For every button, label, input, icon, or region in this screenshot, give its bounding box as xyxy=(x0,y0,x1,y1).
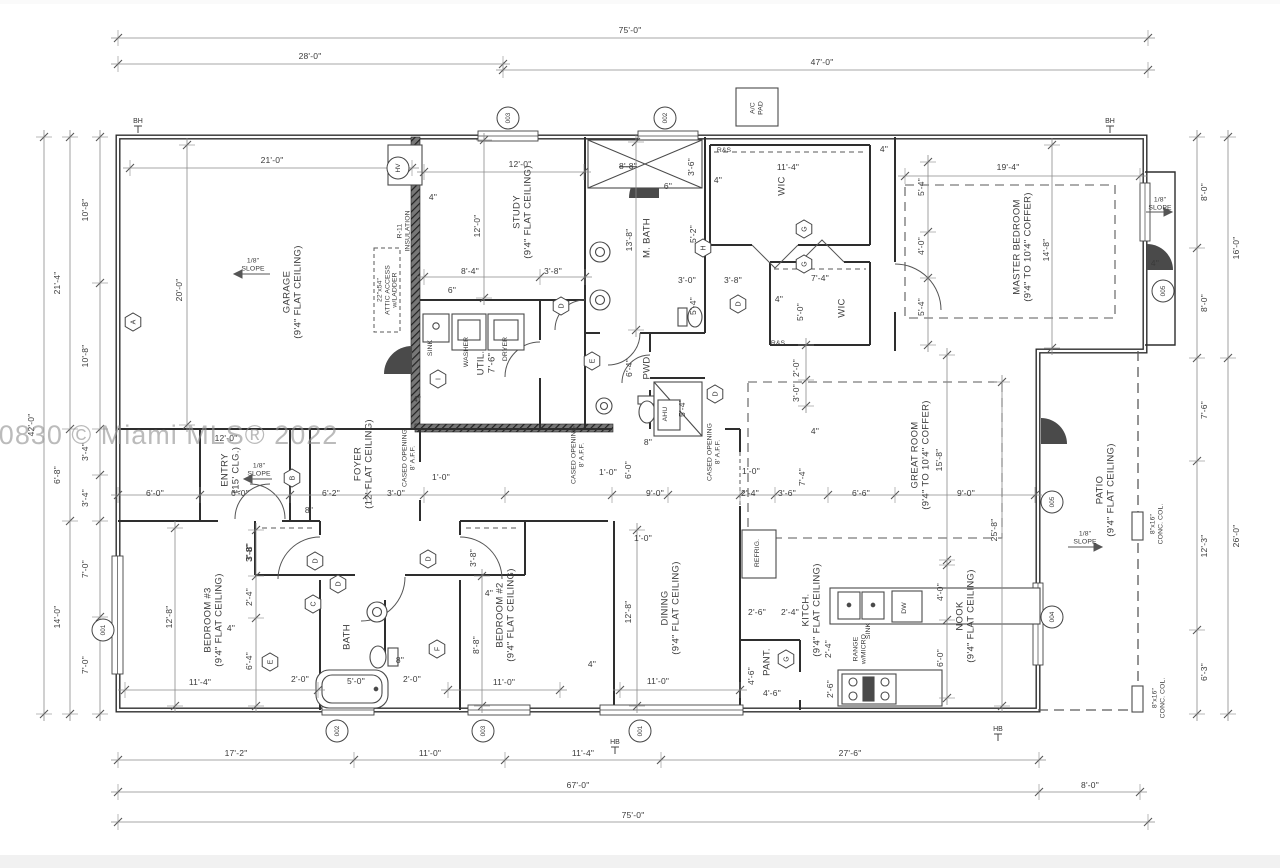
door-tag-E: E xyxy=(262,653,278,671)
label-cased1: CASED OPENING 8' A.F.F. xyxy=(401,429,416,487)
dim-top-28: 28'-0" xyxy=(299,52,322,62)
dim-cl3-4: 4" xyxy=(227,624,235,634)
dim-row-6-6: 6'-6" xyxy=(852,489,870,499)
dim-mbath-5-2: 5'-2" xyxy=(689,225,699,243)
dim-4in-garage: 4" xyxy=(429,193,437,203)
svg-text:H: H xyxy=(700,245,707,250)
conc-column-2 xyxy=(1132,686,1143,712)
svg-text:BH: BH xyxy=(1105,118,1115,125)
dim-wic1-4: 4" xyxy=(714,176,722,186)
room-entry: ENTRY (15' CLG.) xyxy=(220,447,241,494)
label-refrig: REFRIG. xyxy=(754,539,762,567)
dim-kit-2-4a: 2'-4" xyxy=(781,608,799,618)
door-tag-G: G xyxy=(796,220,812,238)
svg-text:003: 003 xyxy=(480,725,487,736)
opening-tag-003: 003 xyxy=(472,720,494,742)
svg-text:HB: HB xyxy=(610,739,620,746)
svg-text:G: G xyxy=(801,226,808,231)
dim-top-75: 75'-0" xyxy=(619,26,642,36)
hose-bib-marker: HB xyxy=(993,726,1003,741)
room-kitch: KITCH. (9'4" FLAT CEILING) xyxy=(801,563,822,656)
room-master: MASTER BEDROOM (9'4" TO 10'4" COFFER) xyxy=(1012,192,1033,302)
dim-row-9-0a: 9'-0" xyxy=(646,489,664,499)
dim-din-6-0: 6'-0" xyxy=(624,461,634,479)
dim-right-8-0a: 8'-0" xyxy=(1200,183,1210,201)
door-tag-A: A xyxy=(125,313,141,331)
dim-cl3-6-4: 6'-4" xyxy=(245,652,255,670)
dim-bot-11-0: 11'-0" xyxy=(419,749,441,759)
room-bath2: BATH xyxy=(343,624,354,650)
dim-study-8-4: 8'-4" xyxy=(461,267,479,277)
dim-right-8-0b: 8'-0" xyxy=(1200,294,1210,312)
dim-cl3-2-4: 2'-4" xyxy=(245,588,255,606)
label-conc-col2: 8"x16" CONC. COL. xyxy=(1151,678,1166,719)
dim-dining-4: 4" xyxy=(588,660,596,670)
svg-text:BH: BH xyxy=(133,118,143,125)
door-tag-C: C xyxy=(305,595,321,613)
hose-bib-marker: BH xyxy=(133,118,143,133)
label-cased2: CASED OPENING 8' A.F.F. xyxy=(570,426,585,484)
floor-plan-page: ABDIEHDGGDCDDDEFG00100200300100300200500… xyxy=(0,0,1280,868)
door-tag-G: G xyxy=(778,650,794,668)
door-tag-F: F xyxy=(429,640,445,658)
page-edge-bottom xyxy=(0,855,1280,868)
opening-tag-003: 003 xyxy=(497,107,519,129)
dim-master-5-4a: 5'-4" xyxy=(917,178,927,196)
dim-left-21-4: 21'-4" xyxy=(53,272,63,295)
dim-cl2-2-0: 2'-0" xyxy=(403,675,421,685)
hose-bib-marker: HB xyxy=(610,739,620,754)
dim-wic1-11-4: 11'-4" xyxy=(777,163,799,173)
svg-text:E: E xyxy=(589,358,596,363)
door-tag-G: G xyxy=(796,255,812,273)
dim-row-6-2: 6'-2" xyxy=(322,489,340,499)
dim-util-4: 4" xyxy=(413,395,421,405)
dim-garage-21-0: 21'-0" xyxy=(261,156,284,166)
dim-porch-4: 4" xyxy=(1151,259,1159,269)
room-dining: DINING (9'4" FLAT CEILING) xyxy=(660,561,681,654)
conc-column-1 xyxy=(1132,512,1143,540)
dim-study-12-0b: 12'-0" xyxy=(473,215,483,238)
room-great: GREAT ROOM (9'4" TO 10'4" COFFER) xyxy=(910,400,931,510)
dim-right-16-0: 16'-0" xyxy=(1232,237,1242,260)
page-edge-top xyxy=(0,0,1280,4)
dim-bed2-4: 4" xyxy=(485,589,493,599)
dim-bot-75: 75'-0" xyxy=(622,811,645,821)
hose-bib-marker: BH xyxy=(1105,118,1115,133)
dim-bot-8-0: 8'-0" xyxy=(1081,781,1099,791)
fixtures xyxy=(316,88,1143,712)
svg-text:E: E xyxy=(267,659,274,664)
dim-gr-3-0: 3'-0" xyxy=(792,384,802,402)
dim-nook-6-0: 6'-0" xyxy=(936,649,946,667)
dim-left-3-4b: 3'-4" xyxy=(81,489,91,507)
dim-nook-4-0: 4'-0" xyxy=(936,583,946,601)
door-tag-E: E xyxy=(584,352,600,370)
opening-tag-005: 005 xyxy=(1152,280,1174,302)
room-nook: NOOK (9'4" FLAT CEILING) xyxy=(955,569,976,662)
dim-mbath-3-0: 3'-0" xyxy=(678,276,696,286)
svg-text:D: D xyxy=(735,301,742,306)
opening-tag-004: 004 xyxy=(1041,606,1063,628)
svg-text:003: 003 xyxy=(505,112,512,123)
svg-text:F: F xyxy=(434,647,441,651)
dim-cl3-2-0: 2'-0" xyxy=(291,675,309,685)
dim-left-6-8: 6'-8" xyxy=(53,466,63,484)
dim-dining-11-0: 11'-0" xyxy=(647,677,669,687)
dim-right-26-0: 26'-0" xyxy=(1232,525,1242,548)
label-ahu: AHU xyxy=(662,407,670,422)
dim-kit-2-6b: 2'-6" xyxy=(826,680,836,698)
dim-left-7-0b: 7'-0" xyxy=(81,656,91,674)
door-tag-D: D xyxy=(330,575,346,593)
label-rs-wic1: R&S xyxy=(717,147,731,155)
svg-text:001: 001 xyxy=(637,725,644,736)
dim-left-10-8a: 10'-8" xyxy=(81,199,91,222)
opening-tag-001: 001 xyxy=(92,619,114,641)
room-util: UTIL. 7'-6" xyxy=(476,351,497,376)
door-tag-D: D xyxy=(420,550,436,568)
room-mbath: M. BATH xyxy=(643,218,654,258)
dim-wic2-5-0: 5'-0" xyxy=(796,303,806,321)
dim-left-7-0a: 7'-0" xyxy=(81,560,91,578)
svg-text:B: B xyxy=(289,475,296,480)
label-range: RANGE w/MICRO xyxy=(852,634,867,664)
door-tag-I: I xyxy=(430,370,446,388)
dim-row-8in: 8" xyxy=(305,506,313,516)
dim-row-9-0b: 9'-0" xyxy=(957,489,975,499)
dim-master-14-8: 14'-8" xyxy=(1042,239,1052,262)
dim-wc-5-4: 5'-4" xyxy=(689,297,699,315)
dim-bed3-12-8: 12'-8" xyxy=(165,606,175,629)
opening-tag-001: 001 xyxy=(629,720,651,742)
svg-text:D: D xyxy=(712,391,719,396)
label-conc-col1: 8"x16" CONC. COL. xyxy=(1149,504,1164,545)
svg-text:005: 005 xyxy=(1049,496,1056,507)
svg-text:HB: HB xyxy=(993,726,1003,733)
dim-din-1-0c: 1'-0" xyxy=(634,534,652,544)
room-study: STUDY (9'4" FLAT CEILING) xyxy=(512,165,533,258)
svg-text:HV: HV xyxy=(395,163,402,173)
dim-row-1-0b: 1'-0" xyxy=(742,467,760,477)
dim-gr-2-0: 2'-0" xyxy=(792,359,802,377)
dim-pant-4-6a: 4'-6" xyxy=(747,667,757,685)
dim-row-6-0b: 6'-0" xyxy=(231,489,249,499)
svg-text:002: 002 xyxy=(662,112,669,123)
dim-bot-27-6: 27'-6" xyxy=(839,749,862,759)
dim-left-10-8b: 10'-8" xyxy=(81,345,91,368)
svg-text:001: 001 xyxy=(100,624,107,635)
dim-master-4: 4" xyxy=(880,145,888,155)
svg-text:A: A xyxy=(130,319,137,324)
label-rs-wic2: R&S xyxy=(771,340,785,348)
opening-tag-005: 005 xyxy=(1041,491,1063,513)
door-tag-D: D xyxy=(553,297,569,315)
label-acpad: A/C PAD xyxy=(749,101,764,115)
watermark: A11290830 © Miami MLS® 2022 xyxy=(0,420,338,450)
door-tag-B: B xyxy=(284,469,300,487)
label-slope-patio: 1/8" SLOPE xyxy=(1073,530,1096,545)
dim-right-12-3: 12'-3" xyxy=(1200,535,1210,558)
svg-text:G: G xyxy=(801,261,808,266)
dim-dining-12-8: 12'-8" xyxy=(624,601,634,624)
label-slope-entry: 1/8" SLOPE xyxy=(247,462,270,477)
room-bed3: BEDROOM #3 (9'4" FLAT CEILING) xyxy=(203,573,224,666)
dim-bed2-3-8: 3'-8" xyxy=(469,549,479,567)
dim-bot-67: 67'-0" xyxy=(567,781,590,791)
svg-text:005: 005 xyxy=(1160,285,1167,296)
dim-row-3-6: 3'-6" xyxy=(778,489,796,499)
svg-text:I: I xyxy=(435,378,442,380)
room-garage: GARAGE (9'4" FLAT CEILING) xyxy=(282,245,303,338)
dim-hall-3-8: 3'-8" xyxy=(724,276,742,286)
dim-master-19-4: 19'-4" xyxy=(997,163,1020,173)
dim-master-4-0: 4'-0" xyxy=(917,237,927,255)
door-tag-D: D xyxy=(730,295,746,313)
dim-gr-7-4: 7'-4" xyxy=(798,468,808,486)
dim-bed2-11-0: 11'-0" xyxy=(493,678,515,688)
room-foyer: FOYER (12' FLAT CEILING) xyxy=(353,419,374,509)
dim-wic2-7-4: 7'-4" xyxy=(811,274,829,284)
dim-master-5-4b: 5'-4" xyxy=(917,298,927,316)
dim-row-1-0a: 1'-0" xyxy=(432,473,450,483)
dim-din-8in: 8" xyxy=(644,438,652,448)
door-tag-D: D xyxy=(307,552,323,570)
room-pwd: PWD xyxy=(643,356,654,379)
svg-text:D: D xyxy=(312,558,319,563)
label-dryer: DRYER xyxy=(502,337,510,361)
opening-tag-HV: HV xyxy=(387,157,409,179)
dim-kit-2-6a: 2'-6" xyxy=(748,608,766,618)
label-washer: WASHER xyxy=(463,337,471,367)
dim-study-6: 6" xyxy=(448,286,456,296)
svg-text:D: D xyxy=(335,581,342,586)
dim-bath2-5-0: 5'-0" xyxy=(347,677,365,687)
svg-text:D: D xyxy=(425,556,432,561)
room-pant: PANT. xyxy=(763,648,774,676)
dim-garage-20-0: 20'-0" xyxy=(175,279,185,302)
dim-bed3-11-4: 11'-4" xyxy=(189,678,211,688)
svg-text:002: 002 xyxy=(334,725,341,736)
svg-text:C: C xyxy=(310,601,317,606)
dim-din-1-0a: 1'-0" xyxy=(599,468,617,478)
svg-text:D: D xyxy=(558,303,565,308)
dim-great-15-8: 15'-8" xyxy=(935,449,945,472)
dim-row-6-0a: 6'-0" xyxy=(146,489,164,499)
dim-shower-3-6: 3'-6" xyxy=(687,158,697,176)
dim-hall-4: 4" xyxy=(811,427,819,437)
dim-pwd-6-4: 6'-4" xyxy=(625,359,635,377)
door-wedges xyxy=(384,168,1173,444)
label-slope-porch: 1/8" SLOPE xyxy=(1148,196,1171,211)
label-r11: R-11 INSULATION xyxy=(396,210,411,251)
toilet-tank-1 xyxy=(678,308,687,326)
dim-mbath-13-8: 13'-8" xyxy=(625,229,635,252)
dim-shower-8-8: 8'-8" xyxy=(619,162,637,172)
dim-row-3-0: 3'-0" xyxy=(387,489,405,499)
dim-wic2-4: 4" xyxy=(775,295,783,305)
opening-tag-002: 002 xyxy=(654,107,676,129)
dim-pant-4-6b: 4'-6" xyxy=(763,689,781,699)
dim-row-2-4: 2'-4" xyxy=(741,489,759,499)
label-dw: DW xyxy=(901,602,909,614)
door-tag-D: D xyxy=(707,385,723,403)
dim-bed2-8-8: 8'-8" xyxy=(472,636,482,654)
dim-bath2-8in: 8" xyxy=(396,656,404,666)
svg-text:G: G xyxy=(783,656,790,661)
dim-cl3-3-8: 3'-8" xyxy=(245,544,255,562)
room-patio: PATIO (9'4" FLAT CEILING) xyxy=(1095,443,1116,536)
label-sink-util: SINK xyxy=(427,340,435,356)
label-slope-garage: 1/8" SLOPE xyxy=(241,257,264,272)
dim-great-25-8: 25'-8" xyxy=(990,519,1000,542)
opening-tag-002: 002 xyxy=(326,720,348,742)
label-attic: 22"x54" ATTIC ACCESS w/LADDER xyxy=(377,265,400,315)
dim-left-14-0: 14'-0" xyxy=(53,606,63,629)
dim-top-47: 47'-0" xyxy=(811,58,834,68)
dim-study-3-8: 3'-8" xyxy=(544,267,562,277)
dim-bot-11-4: 11'-4" xyxy=(572,749,594,759)
dim-shower-6: 6" xyxy=(664,182,672,192)
label-cased3: CASED OPENING 8' A.F.F. xyxy=(706,423,721,481)
room-bed2: BEDROOM #2 (9'4" FLAT CEILING) xyxy=(495,568,516,661)
dim-bot-17-2: 17'-2" xyxy=(225,749,248,759)
dim-kit-2-4b: 2'-4" xyxy=(824,640,834,658)
svg-text:004: 004 xyxy=(1049,611,1056,622)
dim-right-6-3: 6'-3" xyxy=(1200,663,1210,681)
room-wic2: WIC xyxy=(838,298,849,317)
room-wic1: WIC xyxy=(778,176,789,195)
dim-right-7-6: 7'-6" xyxy=(1200,401,1210,419)
dim-ahu-5-4: 5'-4" xyxy=(678,399,688,417)
